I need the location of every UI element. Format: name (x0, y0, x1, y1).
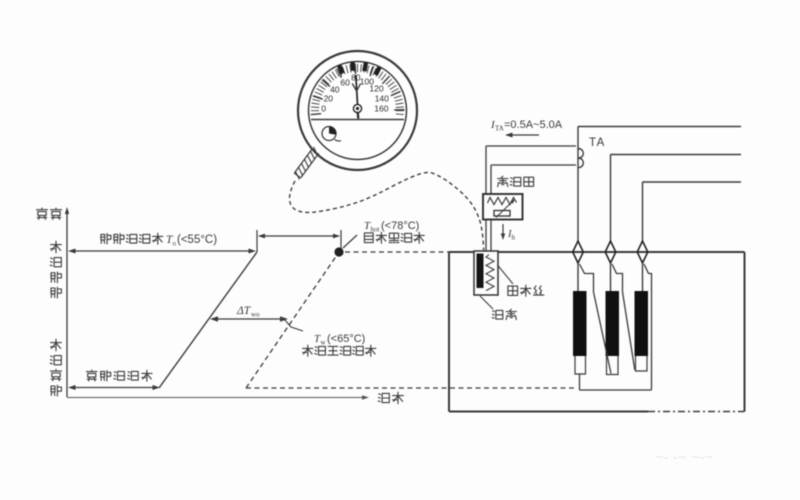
svg-text:TA: TA (495, 125, 504, 133)
svg-text:hot: hot (371, 226, 380, 234)
svg-text:60: 60 (340, 78, 350, 88)
svg-text:(<55°C): (<55°C) (177, 234, 217, 246)
svg-text:TA: TA (589, 137, 606, 149)
svg-text:o: o (173, 240, 177, 248)
svg-text:40: 40 (330, 84, 340, 94)
svg-text:h: h (512, 234, 516, 242)
svg-text:0: 0 (321, 104, 326, 114)
svg-text:~- -~ ~-~: ~- -~ ~-~ (655, 449, 714, 466)
svg-text:(<65°C): (<65°C) (327, 333, 365, 345)
svg-text:wo: wo (251, 311, 260, 319)
svg-text:=0.5A~5.0A: =0.5A~5.0A (504, 119, 563, 131)
svg-text:(<78°C): (<78°C) (381, 220, 419, 232)
svg-text:ΔT: ΔT (236, 305, 252, 317)
svg-text:160: 160 (374, 104, 388, 114)
svg-text:20: 20 (324, 94, 334, 104)
svg-text:140: 140 (375, 94, 389, 104)
svg-text:120: 120 (369, 84, 383, 94)
